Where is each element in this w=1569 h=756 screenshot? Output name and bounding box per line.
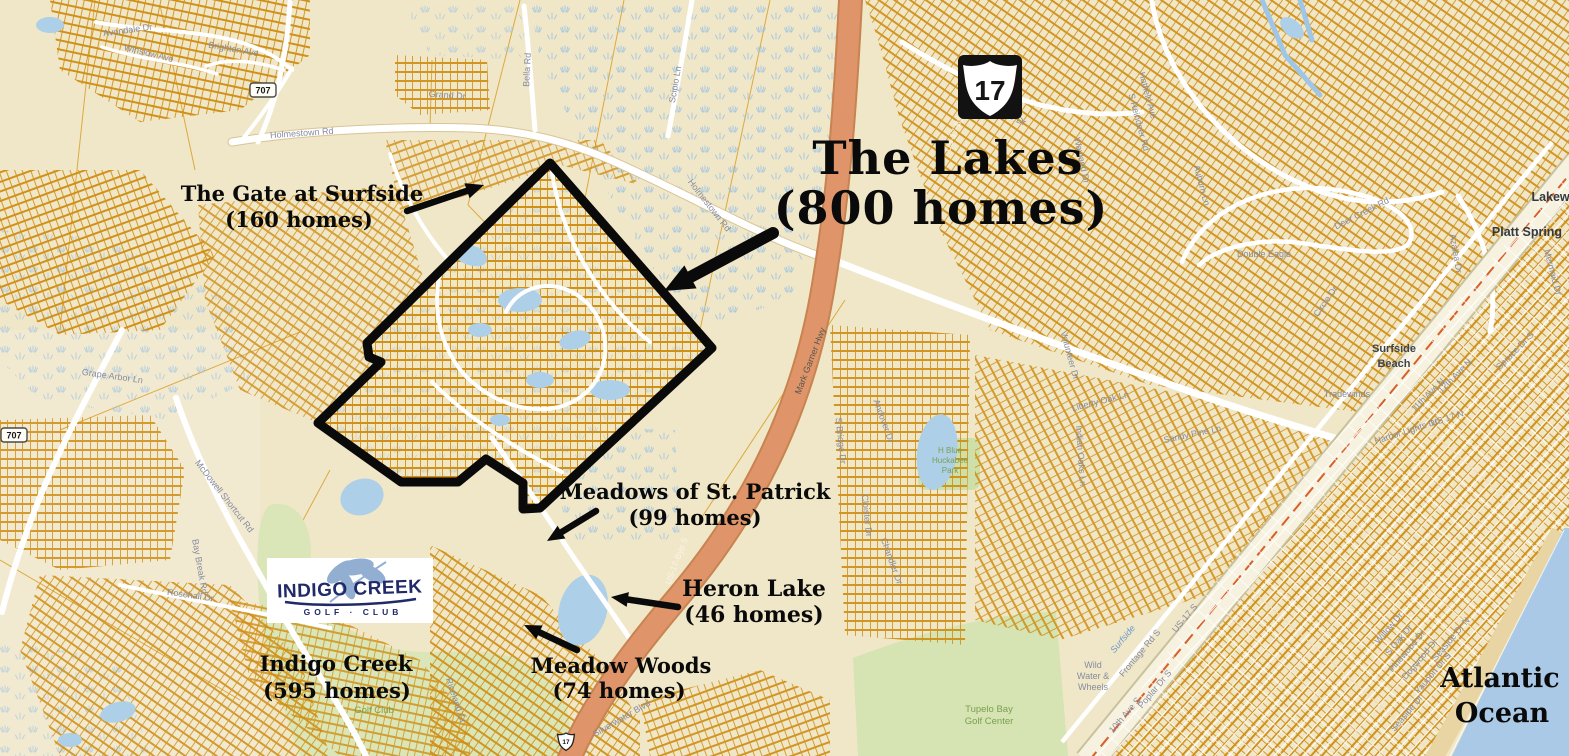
- indigo-creek-golf-club-logo: INDIGO CREEK GOLF · CLUB: [267, 556, 433, 623]
- sc-707-shield: 707: [1, 428, 27, 442]
- place-label: Golf Center: [965, 716, 1014, 727]
- sc-707-shield-number: 707: [6, 431, 21, 441]
- annotation-meadow-woods-subtitle: (74 homes): [552, 678, 685, 703]
- annotation-atlantic-ocean-line2: Ocean: [1455, 698, 1550, 729]
- street-label: Bella Rd: [521, 53, 533, 88]
- annotation-heron-title: Heron Lake: [682, 576, 826, 602]
- annotation-gate-subtitle: (160 homes): [225, 207, 373, 232]
- annotation-indigo-creek-title: Indigo Creek: [260, 651, 413, 676]
- place-label: Huckabee: [932, 456, 969, 465]
- place-label: Surfside: [1372, 343, 1416, 355]
- annotation-meadow-woods-title: Meadow Woods: [531, 653, 712, 678]
- place-label: Golf Club: [354, 705, 394, 716]
- sc-707-shield-number: 707: [255, 86, 270, 96]
- annotation-meadows-title: Meadows of St. Patrick: [560, 479, 831, 504]
- annotation-the-lakes-subtitle: (800 homes): [774, 181, 1109, 235]
- place-label: H Blue: [938, 446, 963, 455]
- us-17-shield-small-number: 17: [562, 739, 570, 746]
- map-canvas: Avondale Dr Winslow Ave Brighton Ave Hol…: [0, 0, 1569, 756]
- annotation-heron-subtitle: (46 homes): [684, 602, 823, 628]
- place-label: Platt Spring: [1492, 225, 1562, 239]
- place-label: Tradewinds: [1324, 389, 1371, 399]
- place-label: Park: [942, 466, 959, 475]
- parcel-map: Avondale Dr Winslow Ave Brighton Ave Hol…: [0, 0, 1569, 756]
- annotation-the-lakes-title: The Lakes: [812, 131, 1083, 185]
- us-17-shield-number: 17: [974, 75, 1005, 106]
- place-label: Beach: [1377, 358, 1410, 370]
- place-label: Lakewood: [1531, 190, 1569, 204]
- annotation-atlantic-ocean-line1: Atlantic: [1439, 663, 1560, 694]
- annotation-gate-title: The Gate at Surfside: [181, 181, 423, 206]
- us-17-shield: 17: [958, 55, 1022, 119]
- annotation-indigo-creek-subtitle: (595 homes): [263, 678, 411, 703]
- place-label: Wheels: [1078, 682, 1109, 692]
- place-label: Water &: [1077, 671, 1109, 681]
- place-label: Tupelo Bay: [965, 704, 1013, 715]
- logo-subtitle: GOLF · CLUB: [304, 607, 403, 617]
- place-label: Wild: [1084, 660, 1102, 670]
- sc-707-shield: 707: [250, 83, 276, 97]
- annotation-meadows-subtitle: (99 homes): [628, 505, 761, 530]
- place-label: Double Eagle: [1237, 249, 1291, 259]
